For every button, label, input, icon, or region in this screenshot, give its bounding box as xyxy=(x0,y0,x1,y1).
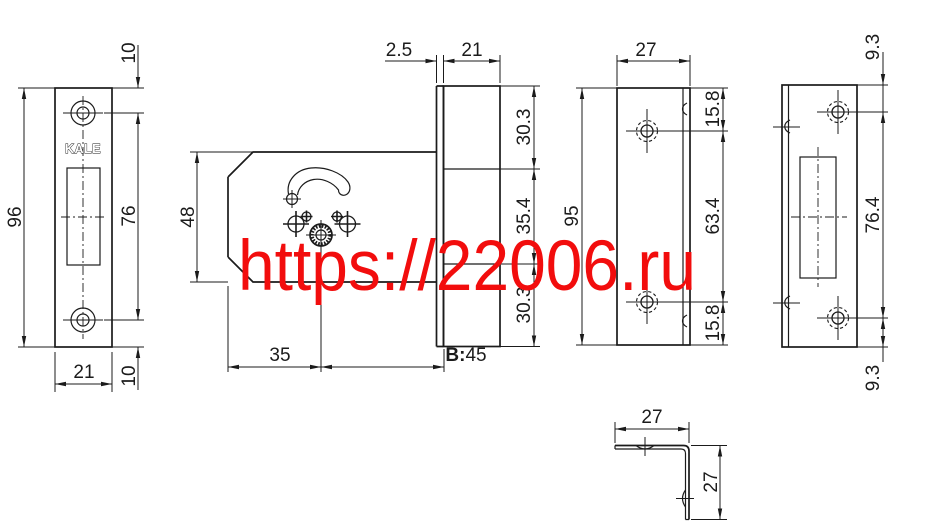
faceplate-slot xyxy=(67,168,100,265)
dim-faceplate-width-side: 21 xyxy=(461,40,482,61)
dim-upper-section: 30.3 xyxy=(514,109,535,146)
dim-strike-hole-bottom: 9.3 xyxy=(863,365,884,391)
dim-cover-hole-top: 15.8 xyxy=(703,91,724,128)
dim-backset: B:45 xyxy=(445,345,486,366)
dim-strike-hole-spacing: 76.4 xyxy=(863,196,884,233)
dimension-lines xyxy=(615,422,727,520)
cover-plate-outline xyxy=(617,88,690,345)
dim-backset-prefix: B: xyxy=(445,345,465,366)
dim-backset-value: 45 xyxy=(465,345,486,366)
view-angle-bracket: 27 27 xyxy=(615,407,727,520)
dim-bracket-height: 27 xyxy=(701,471,722,492)
dim-cover-width: 27 xyxy=(635,40,656,61)
dim-cover-hole-bottom: 15.8 xyxy=(703,305,724,342)
dim-hole-bottom-offset: 10 xyxy=(119,365,140,386)
dim-strike-hole-top: 9.3 xyxy=(863,34,884,60)
bracket-end-caps xyxy=(615,446,689,520)
dim-cover-hole-spacing: 63.4 xyxy=(703,197,724,234)
faceplate-side-panel xyxy=(444,86,501,347)
hole-bottom xyxy=(817,296,888,340)
dim-faceplate-thickness: 2.5 xyxy=(386,40,412,61)
bracket-inner-edge xyxy=(615,449,686,520)
technical-drawing: 96 10 76 10 21 KALE xyxy=(0,0,930,530)
dim-bracket-width: 27 xyxy=(641,407,662,428)
dim-hole-top-offset: 10 xyxy=(119,42,140,63)
technical-drawing-page: 96 10 76 10 21 KALE xyxy=(0,0,930,530)
faceplate-edge-view xyxy=(437,86,444,347)
dimension-lines xyxy=(190,55,540,372)
brand-logo: KALE xyxy=(65,142,101,156)
hole-top xyxy=(817,90,888,134)
keyhole-slot-curve xyxy=(288,168,350,196)
view-lock-case-side: 48 2.5 21 30.3 35.4 30.3 35 B:45 xyxy=(178,40,540,372)
dim-faceplate-width: 21 xyxy=(73,362,94,383)
view-strike-plate: 9.3 76.4 9.3 xyxy=(773,34,888,391)
dim-case-height: 48 xyxy=(178,206,199,227)
dim-cover-height: 95 xyxy=(562,205,583,226)
dim-hole-spacing: 76 xyxy=(119,205,140,226)
dim-hub-offset: 35 xyxy=(269,345,290,366)
view-faceplate-front: 96 10 76 10 21 KALE xyxy=(5,42,144,392)
dim-faceplate-height: 96 xyxy=(5,206,26,227)
bracket-outer-edge xyxy=(615,446,689,520)
bend-mark-ticks xyxy=(773,127,800,303)
strike-plate-outline xyxy=(782,85,857,347)
watermark-url: https://22006.ru xyxy=(238,227,696,306)
